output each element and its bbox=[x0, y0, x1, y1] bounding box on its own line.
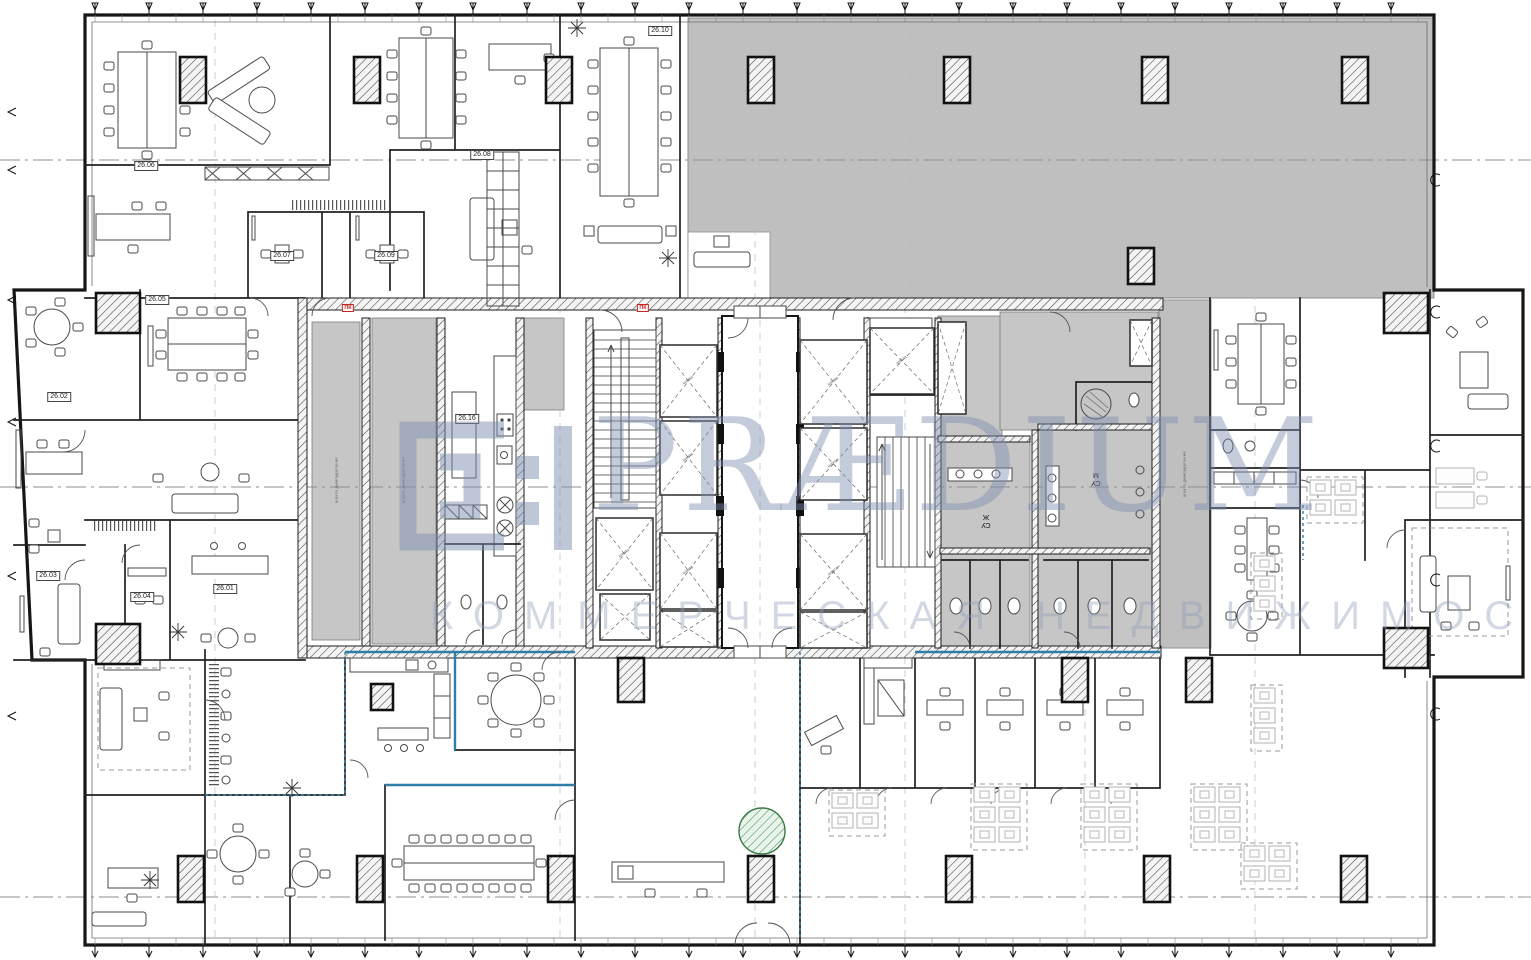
column bbox=[1142, 57, 1168, 103]
column bbox=[1342, 57, 1368, 103]
staircase-east bbox=[877, 437, 935, 567]
column bbox=[748, 856, 774, 902]
column bbox=[944, 57, 970, 103]
column bbox=[357, 856, 383, 902]
tree-icon bbox=[739, 808, 785, 854]
kitchen-pantry bbox=[445, 356, 520, 644]
column bbox=[180, 57, 206, 103]
column bbox=[1384, 293, 1428, 333]
column bbox=[371, 684, 393, 710]
furniture-west-wing bbox=[16, 298, 268, 656]
column bbox=[1186, 658, 1212, 702]
column bbox=[1384, 628, 1428, 668]
plant-icon bbox=[659, 249, 677, 267]
column bbox=[178, 856, 204, 902]
column bbox=[618, 658, 644, 702]
elevator-lobby bbox=[716, 306, 804, 658]
column bbox=[1144, 856, 1170, 902]
furniture-southeast bbox=[805, 658, 1143, 754]
staircase-west bbox=[594, 330, 656, 508]
column bbox=[946, 856, 972, 902]
column bbox=[354, 57, 380, 103]
column bbox=[548, 856, 574, 902]
column bbox=[748, 57, 774, 103]
column bbox=[96, 293, 140, 333]
column bbox=[1341, 856, 1367, 902]
column bbox=[96, 624, 140, 664]
floor-plan-canvas: шахташахташахташахташахташахташахташахта bbox=[0, 0, 1531, 960]
column bbox=[1062, 658, 1088, 702]
column bbox=[1128, 248, 1154, 284]
plant-icon bbox=[169, 623, 187, 641]
column bbox=[546, 57, 572, 103]
floor-plan-page: шахташахташахташахташахташахташахташахта… bbox=[0, 0, 1531, 960]
